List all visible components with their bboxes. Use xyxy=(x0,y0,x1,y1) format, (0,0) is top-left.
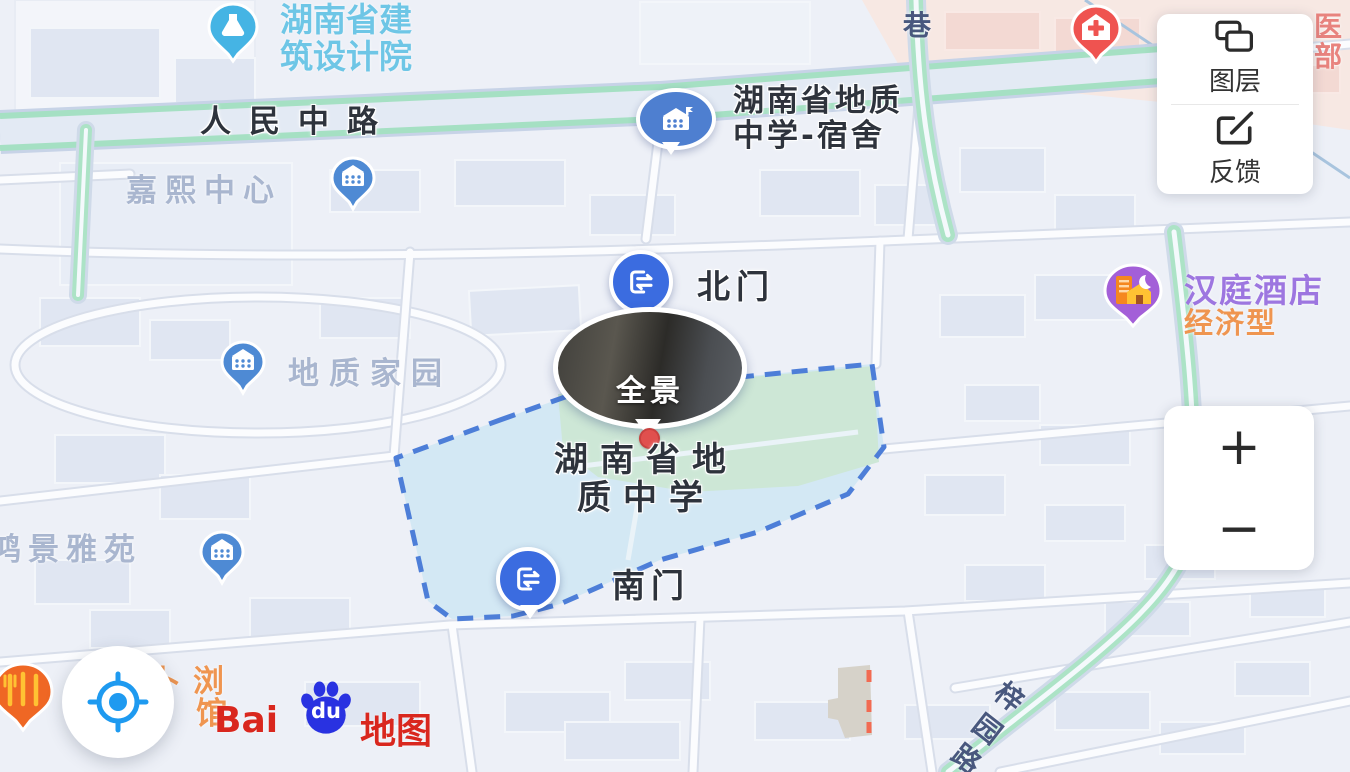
hospital-pin[interactable] xyxy=(1070,4,1122,64)
feedback-label: 反馈 xyxy=(1209,152,1261,189)
design-institute-pin[interactable] xyxy=(207,2,259,64)
baidu-logo-bai: Bai xyxy=(214,700,278,741)
geology-dorm-pin[interactable] xyxy=(636,88,716,150)
zoom-panel: + − xyxy=(1164,406,1314,570)
poi-hongjing-yayuan[interactable]: 鸿景雅苑 xyxy=(0,524,142,569)
poi-design-institute[interactable]: 湖南省建 筑设计院 xyxy=(280,2,412,76)
jiaxi-center-pin[interactable] xyxy=(330,156,376,212)
baidu-logo-map-word: 地图 xyxy=(360,702,432,754)
geology-home-pin[interactable] xyxy=(220,340,266,396)
hanting-hotel-pin[interactable] xyxy=(1102,262,1164,330)
zoom-in-button[interactable]: + xyxy=(1164,406,1314,488)
gate-icon xyxy=(625,266,657,298)
south-gate-marker[interactable] xyxy=(496,547,560,611)
poi-design-institute-line1: 湖南省建 xyxy=(280,2,412,39)
geology-dorm-pin-tail xyxy=(662,142,680,155)
north-gate-marker[interactable] xyxy=(609,250,673,314)
restaurant-pin[interactable] xyxy=(0,660,56,738)
hospital-char-bottom: 部 xyxy=(1314,42,1342,72)
poi-north-gate[interactable]: 北门 xyxy=(697,260,775,308)
hospital-char-top: 医 xyxy=(1314,12,1342,42)
poi-south-gate[interactable]: 南门 xyxy=(612,559,690,607)
panorama-marker[interactable]: 全景 xyxy=(553,307,747,429)
school-building-icon xyxy=(659,104,693,134)
road-label-renmin: 人民中路 xyxy=(200,96,396,141)
poi-geology-dorm-line2: 中学-宿舍 xyxy=(733,119,903,154)
baidu-logo-du: du xyxy=(311,699,341,723)
poi-geology-dorm[interactable]: 湖南省地质 中学-宿舍 xyxy=(733,84,903,154)
panorama-label: 全景 xyxy=(616,366,684,410)
layers-label: 图层 xyxy=(1209,61,1261,98)
locate-button[interactable] xyxy=(62,646,174,758)
poi-geology-dorm-line1: 湖南省地质 xyxy=(733,84,903,119)
gate-icon xyxy=(512,563,544,595)
poi-geology-school[interactable]: 湖南省地 质中学 xyxy=(500,441,792,517)
hongjing-pin[interactable] xyxy=(199,530,245,586)
poi-hanting-category: 经济型 xyxy=(1184,300,1277,342)
road-label-alley: 巷 xyxy=(903,4,931,44)
layers-icon xyxy=(1213,19,1257,55)
layers-button[interactable]: 图层 xyxy=(1157,14,1313,104)
map-tools-panel: 图层 反馈 xyxy=(1157,14,1313,194)
baidu-map-view[interactable]: 人民中路 巷 梓 园 路 湖南省建 筑设计院 嘉熙中心 地质家园 鸿景雅苑 xyxy=(0,0,1350,772)
poi-geology-home[interactable]: 地质家园 xyxy=(288,348,452,393)
feedback-button[interactable]: 反馈 xyxy=(1157,105,1313,195)
feedback-icon xyxy=(1213,110,1257,146)
zoom-out-button[interactable]: − xyxy=(1164,488,1314,570)
poi-geology-school-line1: 湖南省地 xyxy=(500,441,792,479)
poi-jiaxi-center[interactable]: 嘉熙中心 xyxy=(126,165,282,210)
poi-hospital-partial: 医 部 xyxy=(1314,12,1342,72)
poi-geology-school-line2: 质中学 xyxy=(500,479,792,517)
baidu-paw-icon: du xyxy=(298,678,354,736)
locate-crosshair-icon xyxy=(86,670,150,734)
poi-design-institute-line2: 筑设计院 xyxy=(280,39,412,76)
